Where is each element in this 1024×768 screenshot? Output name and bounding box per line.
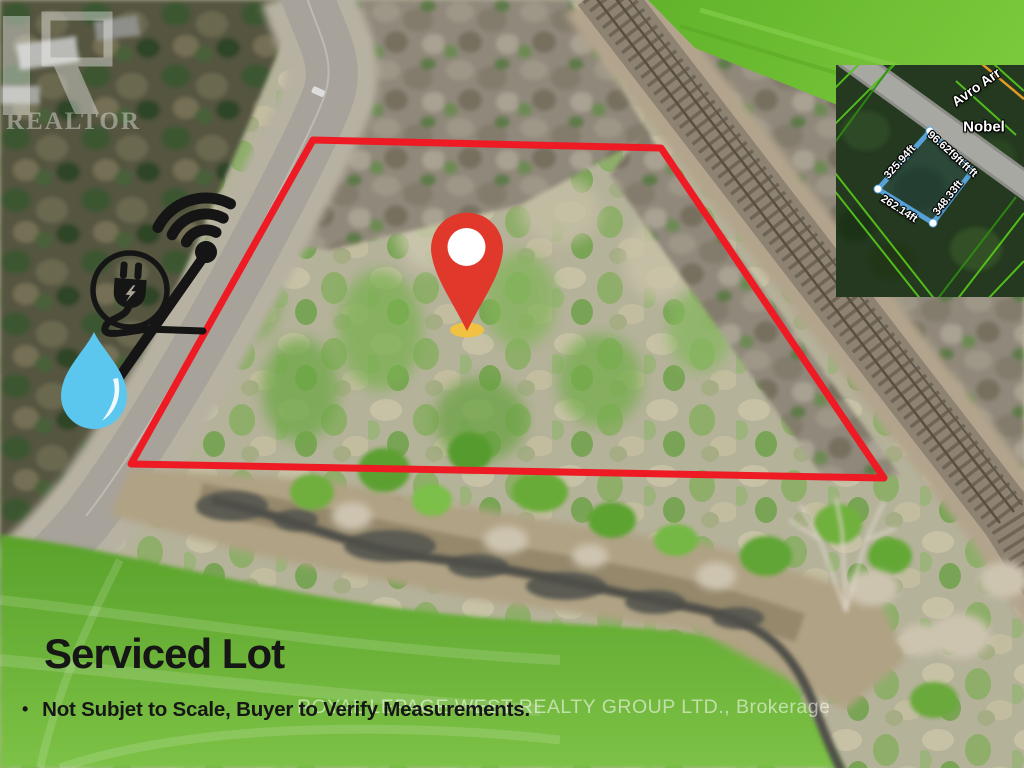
inset-place-label: Nobel [963,119,1005,136]
listing-title: Serviced Lot [44,630,284,678]
bullet-point: • [22,699,28,720]
realtor-watermark: REALTOR [0,8,150,143]
listing-photo: Avro Arr Nobel 325.94ft 96.62ft 9ft ft f… [0,0,1024,768]
disclaimer-text: •Not Subjet to Scale, Buyer to Verify Me… [22,698,530,722]
disclaimer-line: Not Subjet to Scale, Buyer to Verify Mea… [42,698,530,721]
inset-map-graphic [836,65,1024,297]
realtor-watermark-text: REALTOR [6,108,141,136]
inset-survey-map: Avro Arr Nobel 325.94ft 96.62ft 9ft ft f… [836,65,1024,297]
